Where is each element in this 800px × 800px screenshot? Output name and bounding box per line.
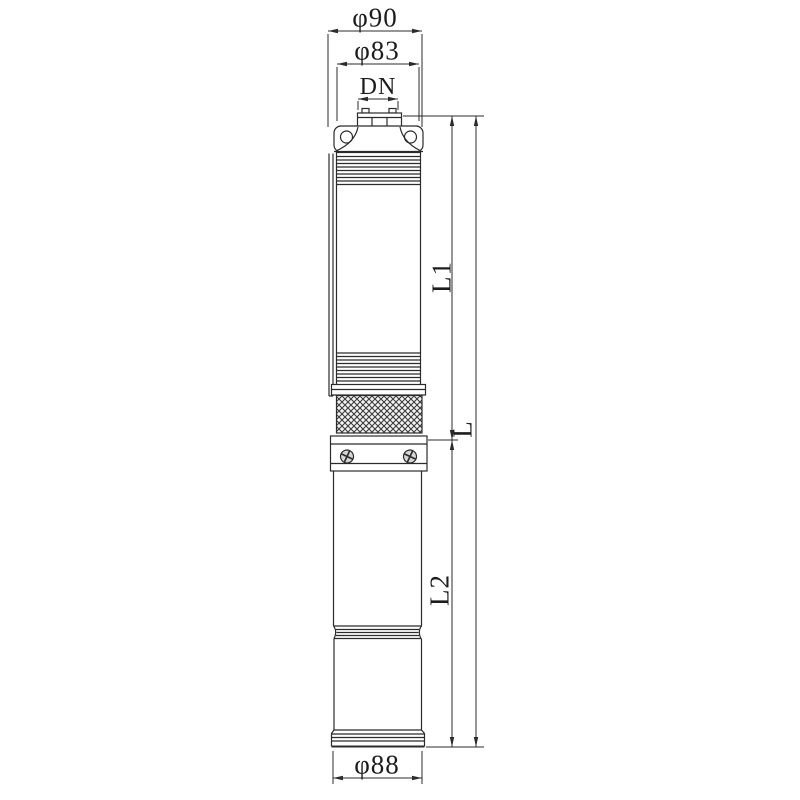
upper-rib-section	[337, 157, 421, 185]
dim-label-l1: L1	[429, 261, 456, 293]
dim-label-phi83: φ83	[354, 38, 400, 65]
bottom-rib-section	[332, 730, 425, 747]
motor-joint-groove	[334, 626, 422, 639]
dim-label-phi90: φ90	[352, 5, 398, 32]
motor-body-lower	[334, 639, 422, 731]
cable-guard	[329, 154, 333, 397]
coupling-band	[331, 436, 428, 471]
dim-label-phi88: φ88	[354, 752, 400, 779]
motor-body	[334, 471, 422, 626]
pump-top-cap	[334, 126, 423, 152]
dim-label-l: L	[450, 420, 477, 438]
dim-label-dn: DN	[360, 75, 397, 99]
dim-label-l2: L2	[427, 574, 454, 606]
pump-drawing-canvas	[0, 0, 800, 800]
suction-strainer-mesh	[337, 396, 423, 434]
pump-dimension-drawing: φ90 φ83 DN L1 L L2 φ88	[0, 0, 800, 800]
pump-body-upper	[337, 153, 421, 396]
strainer-flange	[332, 385, 426, 396]
outlet-thread-crests	[362, 109, 396, 114]
pump-lower-rib-section	[337, 353, 421, 381]
